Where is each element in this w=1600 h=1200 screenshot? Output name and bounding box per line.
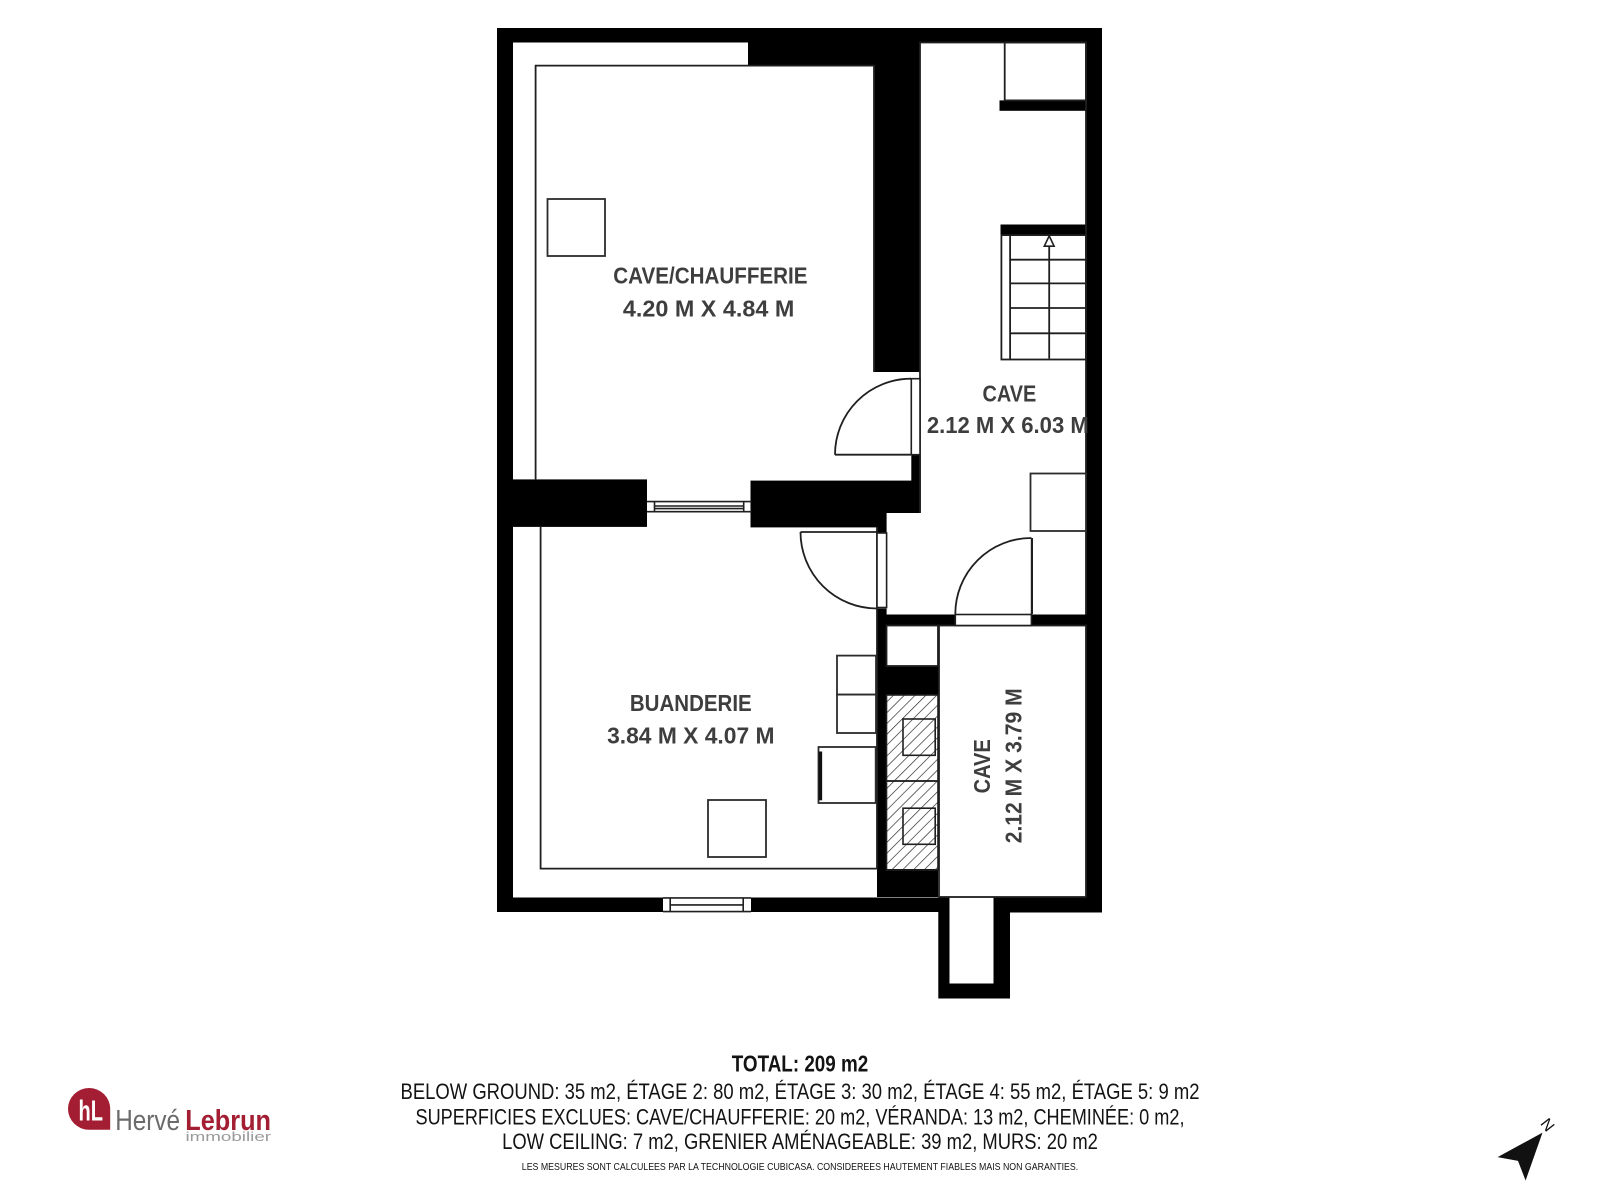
svg-text:immobilier: immobilier — [186, 1130, 272, 1144]
svg-text:LES MESURES SONT CALCULEES PAR: LES MESURES SONT CALCULEES PAR LA TECHNO… — [522, 1161, 1078, 1173]
svg-text:4.20 M X 4.84 M: 4.20 M X 4.84 M — [623, 296, 795, 322]
svg-text:CAVE: CAVE — [969, 739, 995, 793]
svg-text:BUANDERIE: BUANDERIE — [630, 690, 752, 716]
svg-text:Hervé: Hervé — [115, 1105, 180, 1137]
svg-text:3.84 M X 4.07 M: 3.84 M X 4.07 M — [607, 722, 774, 748]
svg-text:SUPERFICIES EXCLUES: CAVE/CHAU: SUPERFICIES EXCLUES: CAVE/CHAUFFERIE: 20… — [416, 1104, 1185, 1129]
svg-text:hL: hL — [79, 1096, 104, 1128]
svg-text:2.12 M X 6.03 M: 2.12 M X 6.03 M — [927, 412, 1089, 438]
svg-text:TOTAL: 209 m2: TOTAL: 209 m2 — [732, 1051, 869, 1077]
svg-text:LOW CEILING: 7 m2, GRENIER AMÉ: LOW CEILING: 7 m2, GRENIER AMÉNAGEABLE: … — [502, 1129, 1098, 1154]
svg-text:CAVE/CHAUFFERIE: CAVE/CHAUFFERIE — [613, 263, 807, 289]
svg-text:2.12 M X 3.79 M: 2.12 M X 3.79 M — [1001, 688, 1027, 843]
svg-text:CAVE: CAVE — [983, 380, 1037, 406]
svg-text:BELOW GROUND: 35 m2, ÉTAGE 2:: BELOW GROUND: 35 m2, ÉTAGE 2: 80 m2, ÉTA… — [401, 1079, 1200, 1104]
